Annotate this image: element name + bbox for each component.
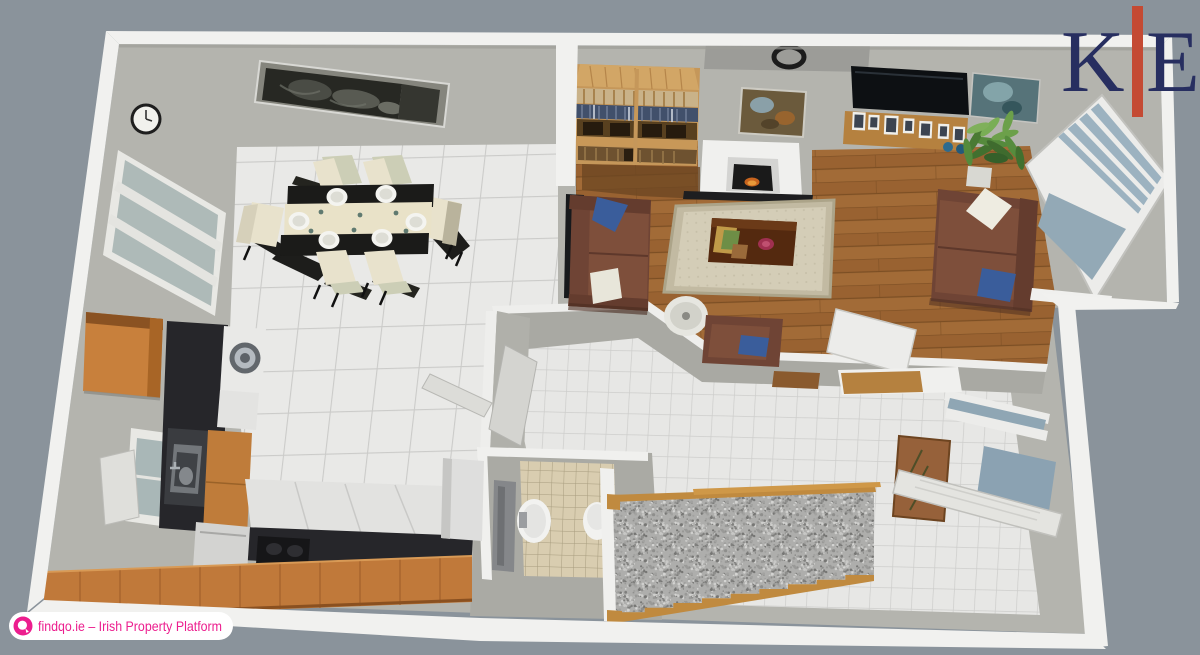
- svg-text:E: E: [1146, 14, 1200, 111]
- svg-text:findqo.ie – Irish Property Pla: findqo.ie – Irish Property Platform: [38, 618, 222, 634]
- svg-text:K: K: [1061, 14, 1125, 111]
